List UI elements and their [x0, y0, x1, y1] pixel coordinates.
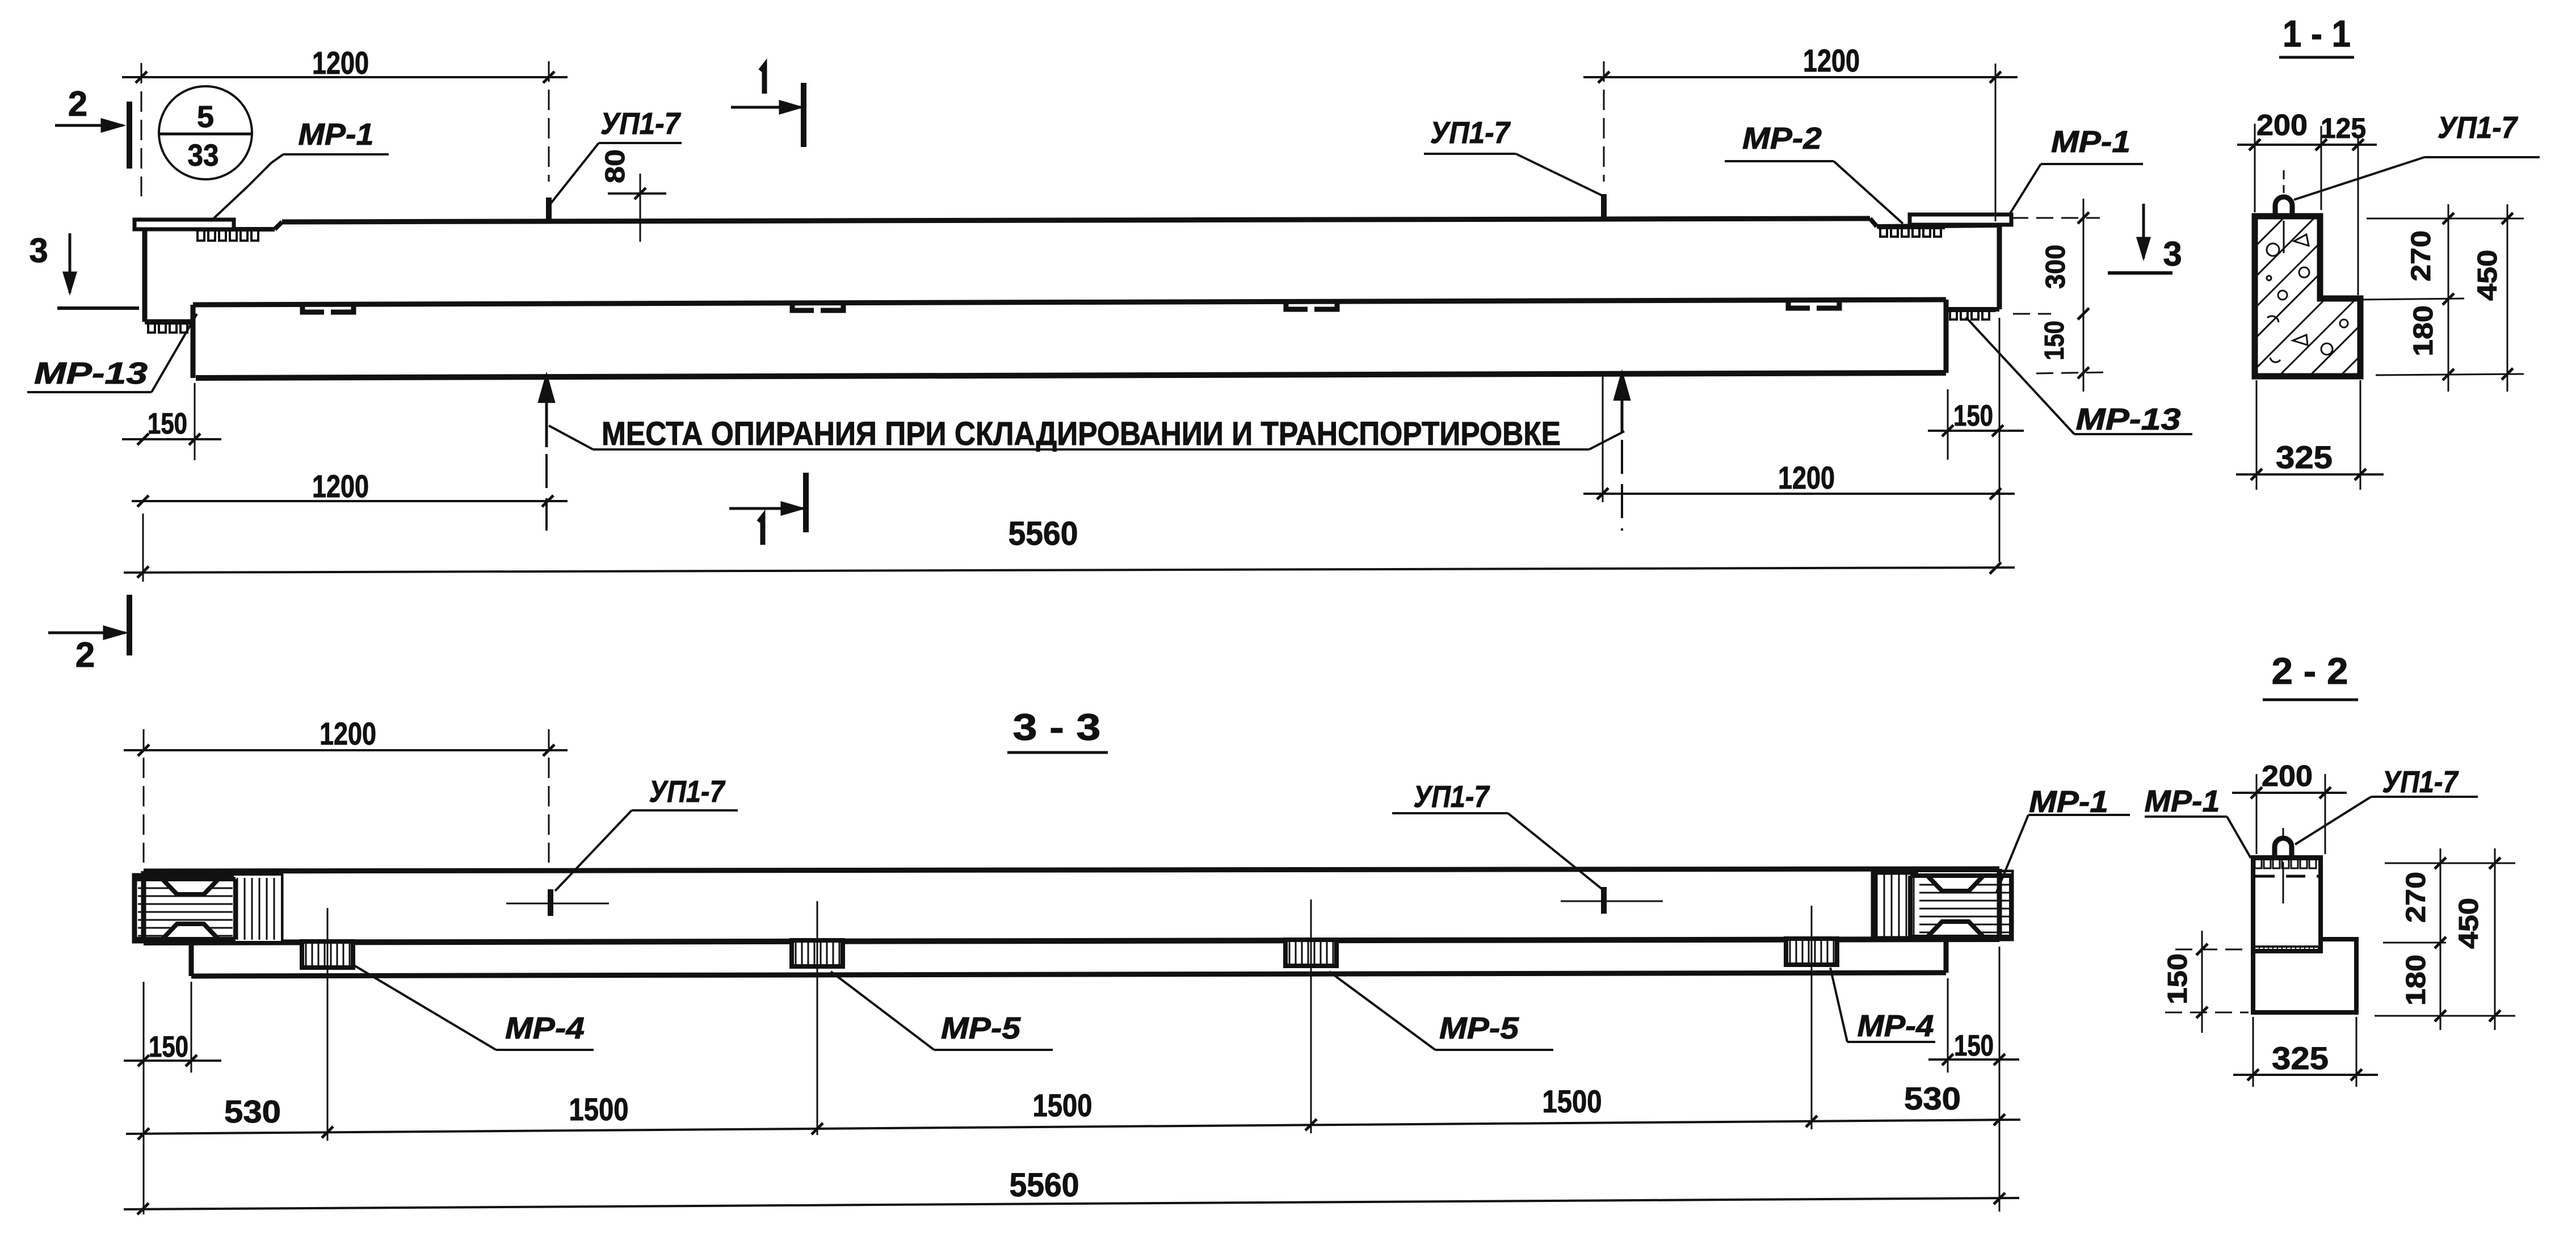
svg-text:200: 200	[2256, 109, 2308, 142]
svg-text:МР-4: МР-4	[505, 1011, 585, 1045]
svg-text:1200: 1200	[312, 468, 369, 504]
svg-text:3: 3	[2163, 235, 2182, 273]
svg-text:МР-13: МР-13	[2076, 402, 2181, 436]
svg-text:325: 325	[2276, 439, 2333, 475]
svg-text:МР-2: МР-2	[1742, 121, 1822, 155]
svg-text:180: 180	[2401, 955, 2431, 1006]
svg-text:5560: 5560	[1010, 1167, 1079, 1204]
svg-text:270: 270	[2401, 872, 2431, 923]
svg-text:150: 150	[1953, 400, 1993, 432]
svg-text:2 - 2: 2 - 2	[2272, 650, 2348, 692]
svg-text:МЕСТА ОПИРАНИЯ ПРИ СКЛАДИРОВАН: МЕСТА ОПИРАНИЯ ПРИ СКЛАДИРОВАНИИ И ТРАНС…	[602, 415, 1561, 452]
svg-text:200: 200	[2262, 760, 2313, 793]
svg-text:1500: 1500	[1033, 1087, 1092, 1123]
svg-text:МР-1: МР-1	[2145, 784, 2220, 818]
svg-text:2: 2	[75, 636, 95, 675]
svg-text:2: 2	[68, 85, 87, 124]
svg-text:150: 150	[2040, 321, 2070, 360]
svg-text:1200: 1200	[1778, 460, 1835, 495]
svg-text:325: 325	[2272, 1040, 2329, 1076]
svg-text:УП1-7: УП1-7	[2438, 111, 2519, 145]
svg-text:5: 5	[197, 100, 214, 134]
svg-text:УП1-7: УП1-7	[600, 107, 682, 141]
svg-text:150: 150	[149, 1031, 188, 1063]
svg-text:530: 530	[1904, 1081, 1961, 1116]
svg-text:3 - 3: 3 - 3	[1013, 706, 1101, 748]
svg-text:1500: 1500	[569, 1091, 629, 1127]
svg-text:1200: 1200	[320, 716, 376, 751]
svg-text:300: 300	[2041, 245, 2071, 289]
svg-text:УП1-7: УП1-7	[2382, 765, 2460, 799]
svg-text:80: 80	[600, 149, 631, 183]
svg-text:3: 3	[29, 232, 48, 270]
svg-text:МР-1: МР-1	[299, 117, 374, 152]
svg-text:МР-5: МР-5	[1439, 1011, 1519, 1045]
svg-text:1200: 1200	[312, 45, 369, 81]
svg-text:УП1-7: УП1-7	[1414, 780, 1491, 814]
svg-text:1200: 1200	[1803, 43, 1860, 78]
svg-text:270: 270	[2406, 230, 2436, 281]
svg-text:125: 125	[2321, 112, 2366, 144]
svg-text:МР-13: МР-13	[34, 356, 148, 390]
svg-text:150: 150	[1954, 1029, 1994, 1062]
svg-text:530: 530	[224, 1094, 281, 1129]
svg-text:150: 150	[2163, 953, 2193, 1004]
svg-text:МР-1: МР-1	[2051, 125, 2130, 159]
svg-text:33: 33	[188, 138, 219, 173]
svg-text:1500: 1500	[1543, 1083, 1602, 1119]
svg-text:150: 150	[148, 407, 187, 440]
svg-text:180: 180	[2409, 305, 2439, 356]
svg-text:МР-4: МР-4	[1858, 1009, 1934, 1043]
svg-text:УП1-7: УП1-7	[1430, 116, 1511, 150]
svg-text:1 - 1: 1 - 1	[2283, 12, 2351, 54]
svg-text:450: 450	[2454, 898, 2484, 949]
svg-text:5560: 5560	[1008, 515, 1078, 552]
svg-text:450: 450	[2473, 250, 2503, 301]
svg-text:МР-5: МР-5	[941, 1011, 1021, 1045]
svg-text:УП1-7: УП1-7	[649, 775, 726, 809]
